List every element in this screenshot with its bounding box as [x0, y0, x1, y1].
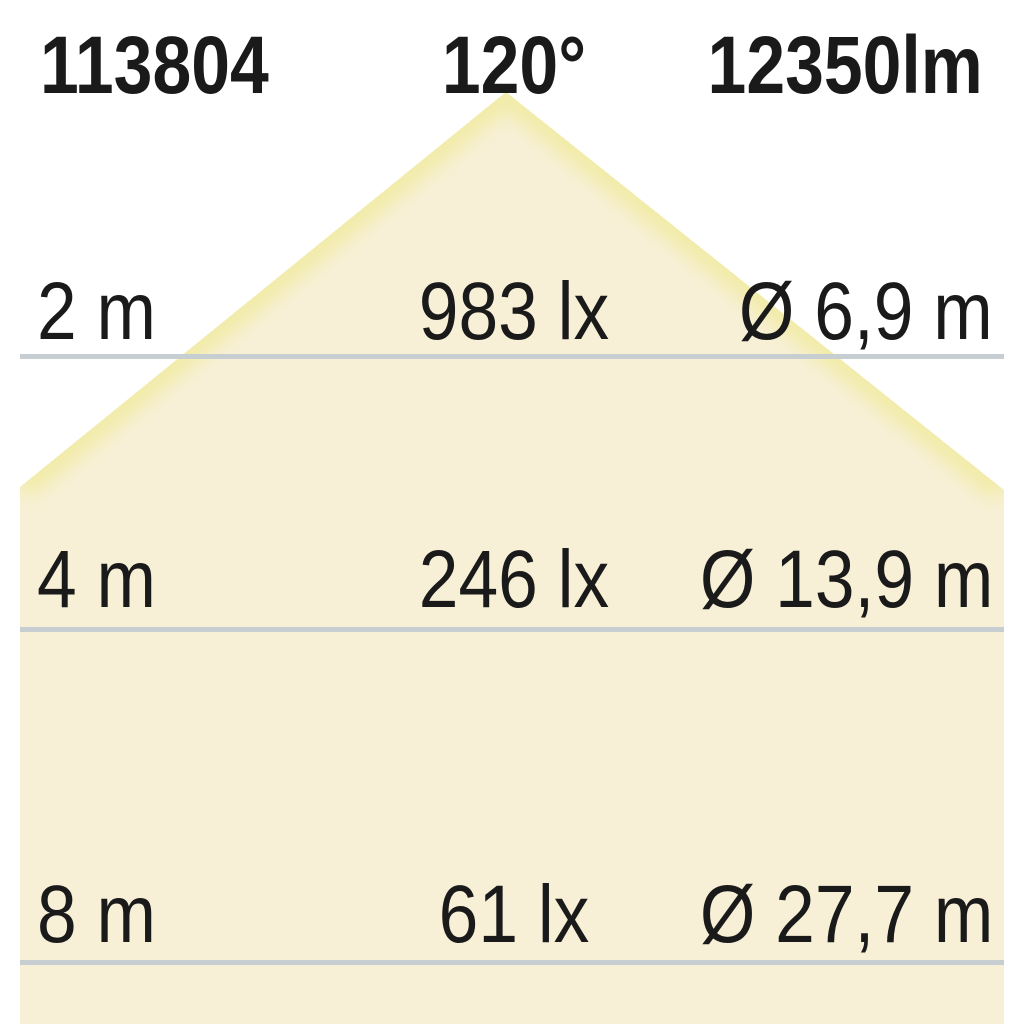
illuminance-value: 61 lx: [340, 874, 688, 956]
beam-angle: 120°: [344, 25, 684, 107]
distance-line-4m: [20, 627, 1004, 632]
beam-diameter-value: Ø 27,7 m: [700, 874, 993, 956]
article-number: 113804: [40, 25, 269, 107]
beam-diameter-value: Ø 13,9 m: [700, 539, 993, 621]
beam-diameter-value: Ø 6,9 m: [739, 271, 993, 353]
light-cone-diagram: 113804 120° 12350lm 2 m 983 lx Ø 6,9 m 4…: [0, 0, 1024, 1024]
distance-label: 8 m: [37, 874, 156, 956]
illuminance-value: 983 lx: [340, 271, 688, 353]
illuminance-value: 246 lx: [340, 539, 688, 621]
distance-line-8m: [20, 960, 1004, 965]
distance-label: 2 m: [37, 271, 156, 353]
distance-label: 4 m: [37, 539, 156, 621]
luminous-flux: 12350lm: [708, 25, 983, 107]
